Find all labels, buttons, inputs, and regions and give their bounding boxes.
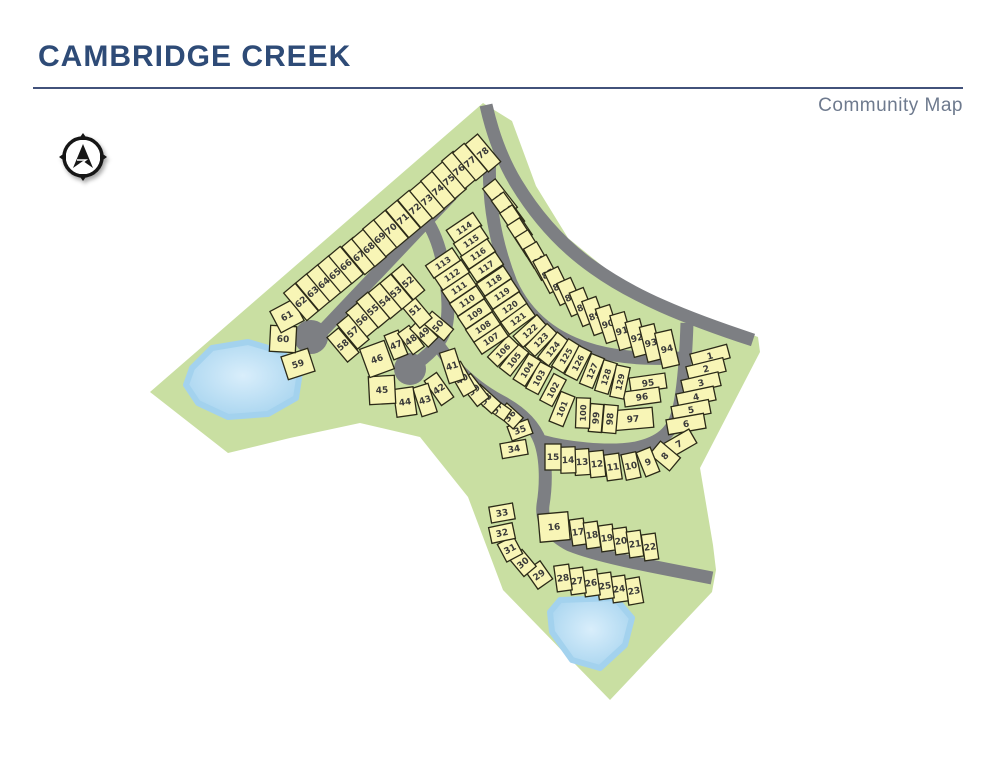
lot-16: 16 bbox=[538, 512, 570, 543]
lot-22: 22 bbox=[641, 533, 658, 561]
lot-number: 12 bbox=[590, 459, 604, 470]
lot-18: 18 bbox=[583, 521, 600, 549]
lot-number: 21 bbox=[628, 539, 642, 551]
lot-number: 98 bbox=[605, 412, 616, 425]
lot-14: 14 bbox=[560, 447, 576, 474]
lot-11: 11 bbox=[604, 453, 622, 481]
lot-number: 19 bbox=[600, 533, 614, 545]
compass-rose-icon bbox=[59, 133, 107, 181]
lot-number: 17 bbox=[571, 527, 585, 539]
lot-number: 13 bbox=[575, 458, 588, 469]
lot-number: 45 bbox=[376, 386, 389, 397]
lot-number: 16 bbox=[547, 522, 560, 533]
lot-33: 33 bbox=[489, 503, 515, 523]
lot-44: 44 bbox=[393, 387, 417, 418]
lot-number: 20 bbox=[614, 536, 628, 548]
lot-number: 100 bbox=[578, 404, 589, 422]
lot-100: 100 bbox=[575, 398, 590, 428]
lot-15: 15 bbox=[545, 444, 561, 470]
community-map-svg: 1234567891011121314151617181920212223242… bbox=[0, 0, 995, 768]
lot-number: 96 bbox=[635, 392, 649, 404]
lot-number: 22 bbox=[643, 542, 657, 554]
cul-de-sac-1 bbox=[294, 320, 328, 354]
pond-1 bbox=[186, 342, 300, 417]
lot-number: 18 bbox=[585, 530, 599, 542]
lot-98: 98 bbox=[602, 404, 618, 433]
lot-21: 21 bbox=[626, 530, 643, 558]
lot-45: 45 bbox=[368, 375, 395, 404]
lot-number: 26 bbox=[584, 578, 598, 590]
lot-number: 28 bbox=[556, 573, 570, 585]
lot-number: 14 bbox=[562, 456, 575, 466]
lot-number: 11 bbox=[606, 462, 620, 474]
lot-number: 97 bbox=[626, 414, 639, 425]
lot-number: 99 bbox=[591, 411, 602, 424]
lot-28: 28 bbox=[554, 564, 572, 592]
lot-number: 60 bbox=[276, 335, 289, 346]
lot-number: 44 bbox=[398, 397, 412, 409]
lot-number: 15 bbox=[547, 453, 560, 463]
lot-97: 97 bbox=[612, 407, 654, 430]
